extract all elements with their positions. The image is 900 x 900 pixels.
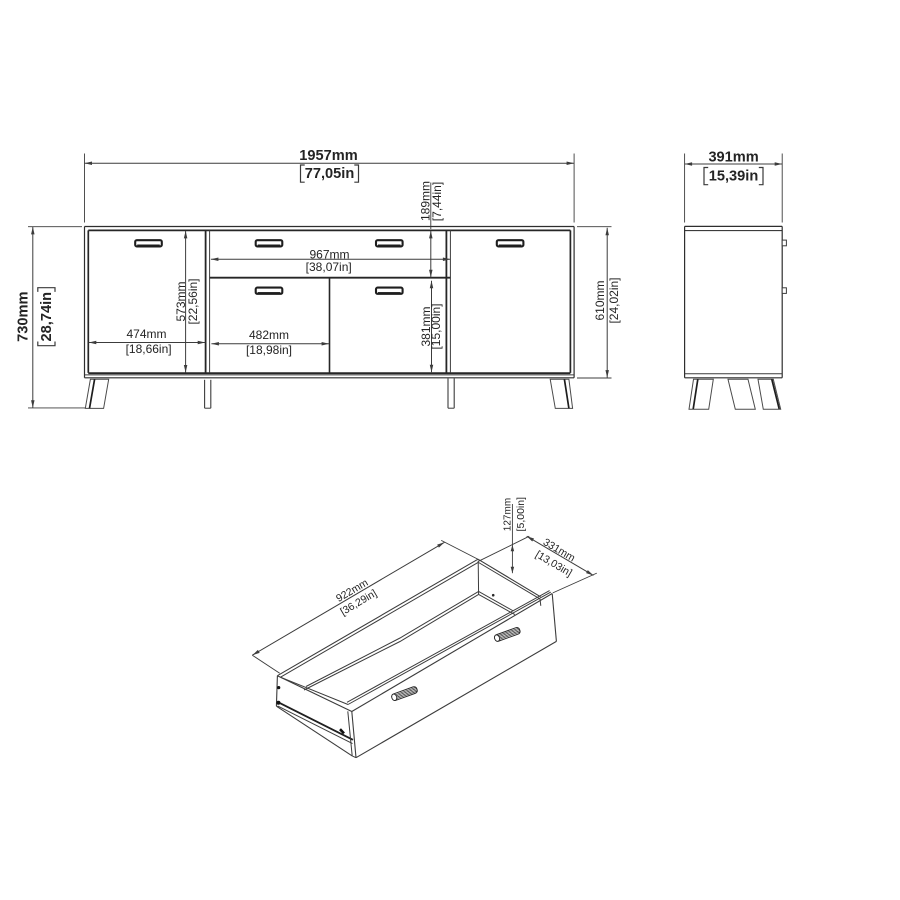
svg-text:[18,66in]: [18,66in] <box>126 342 172 356</box>
svg-text:[15,00in]: [15,00in] <box>429 303 443 349</box>
svg-text:[22,56in]: [22,56in] <box>186 278 200 324</box>
svg-text:[24,02in]: [24,02in] <box>607 277 621 323</box>
svg-text:1957mm: 1957mm <box>299 148 357 164</box>
svg-text:[7,44in]: [7,44in] <box>430 182 444 221</box>
svg-text:28,74in: 28,74in <box>39 292 55 342</box>
svg-text:[5,00in]: [5,00in] <box>515 497 527 532</box>
svg-text:127mm: 127mm <box>502 498 513 531</box>
svg-text:610mm: 610mm <box>593 280 607 320</box>
svg-text:730mm: 730mm <box>16 292 32 342</box>
svg-text:15,39in: 15,39in <box>709 169 759 185</box>
svg-text:77,05in: 77,05in <box>305 166 355 182</box>
svg-text:474mm: 474mm <box>126 327 166 341</box>
svg-text:[18,98in]: [18,98in] <box>246 343 292 357</box>
svg-text:482mm: 482mm <box>249 328 289 342</box>
svg-text:[38,07in]: [38,07in] <box>306 260 352 274</box>
svg-text:391mm: 391mm <box>708 150 758 166</box>
